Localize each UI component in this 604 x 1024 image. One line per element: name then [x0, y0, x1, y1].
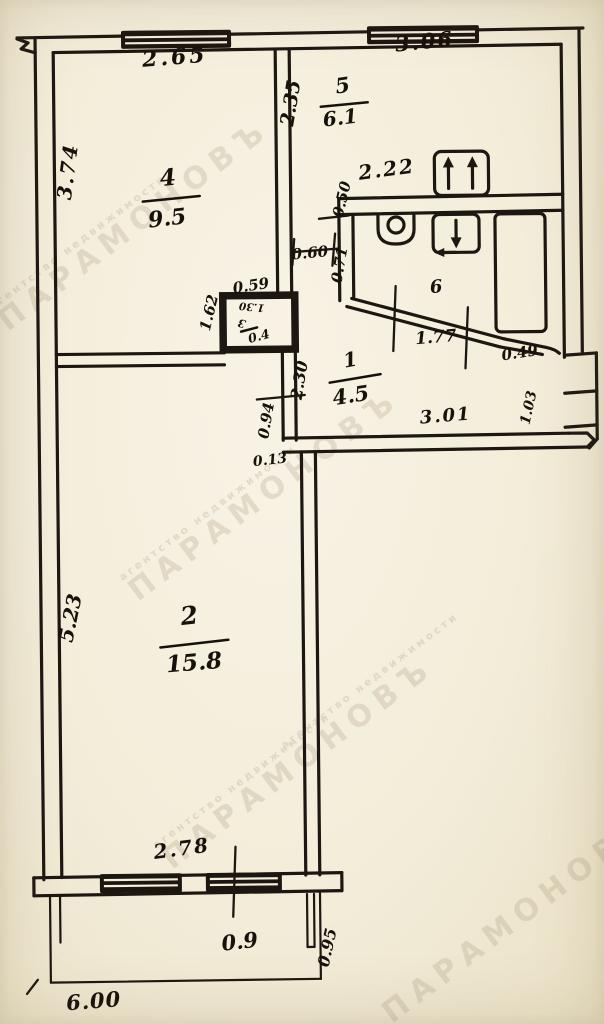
closet-inner-dim: 1.30	[238, 299, 265, 313]
vent-arrow-down-icon	[451, 237, 462, 248]
wall-segment	[301, 452, 305, 875]
balcony-area: 0.9	[220, 927, 260, 956]
wall-segment	[34, 873, 342, 878]
dim-entry-depth: 1.03	[518, 389, 541, 426]
scanned-floor-plan: агентство недвижимости ПАРАМОНОВЪ агентс…	[0, 0, 604, 1024]
room4-area: 9.5	[147, 203, 188, 233]
dim-window-room5: 3.06	[394, 26, 455, 57]
window-glass-line	[104, 879, 178, 880]
watermark: агентство недвижимости ПАРАМОНОВЪ	[0, 105, 277, 338]
wall-segment	[17, 28, 583, 38]
toilet-icon	[388, 217, 404, 233]
wall-segment	[275, 50, 278, 294]
wall-segment	[561, 44, 564, 357]
room2-area: 15.8	[165, 647, 223, 678]
dim-corridor-length: 2.30	[286, 359, 311, 402]
wall-break-symbol	[17, 39, 35, 53]
dim-balcony-depth: 0.95	[314, 926, 341, 968]
dim-tick	[27, 980, 38, 994]
wall-segment	[56, 353, 224, 355]
window-glass-line	[125, 42, 227, 43]
entry-recess	[565, 391, 597, 393]
wall-segment	[315, 452, 319, 875]
balcony-outline	[50, 891, 321, 983]
vent-shaft-up-icon	[434, 151, 488, 196]
vent-arrow-up-icon	[467, 156, 478, 167]
entry-recess	[565, 425, 597, 427]
dim-bath-wall: 0.71	[328, 245, 352, 284]
balcony-edge	[51, 979, 321, 983]
dim-bath-diagonal: 1.77	[414, 326, 457, 349]
window-glass-line	[125, 36, 227, 37]
balcony-partition	[314, 894, 315, 947]
diagonal-wall	[546, 347, 559, 353]
dim-passage-width: 0.60	[291, 242, 330, 264]
balcony-partition	[307, 894, 308, 947]
dim-hall-width: 3.01	[419, 403, 472, 428]
wall-segment	[579, 28, 582, 352]
dim-diagonal-tail: 0.49	[500, 341, 539, 364]
room5-number: 5	[333, 72, 351, 99]
room5-area: 6.1	[321, 104, 358, 132]
bathtub-icon	[495, 213, 546, 332]
wall-segment	[56, 365, 224, 367]
wall-segment	[569, 433, 594, 447]
wall-segment	[353, 214, 354, 296]
balcony-door-window-icon	[206, 872, 282, 892]
dim-room4-left: 3.74	[52, 142, 83, 201]
floor-plan-drawing: агентство недвижимости ПАРАМОНОВЪ агентс…	[0, 0, 604, 1024]
room1-number: 1	[341, 347, 359, 373]
room6-number: 6	[429, 276, 444, 298]
room3-number: 3	[236, 316, 247, 331]
wall-segment	[35, 40, 44, 880]
room4-number: 4	[159, 164, 178, 192]
room2-number: 2	[178, 600, 200, 631]
balcony-edge	[50, 896, 51, 983]
watermark-name: ПАРАМОНОВЪ	[0, 112, 277, 339]
wall-segment	[34, 891, 342, 896]
dim-total-width: 6.00	[65, 986, 122, 1015]
entry-recess	[564, 353, 596, 355]
window-room2-icon	[100, 873, 182, 893]
dim-window-room4: 2.65	[140, 42, 208, 73]
vent-arrow-up-icon	[443, 156, 454, 167]
dim-door-width: 0.94	[254, 401, 278, 440]
window-glass-line	[104, 885, 178, 886]
watermark: ПАРАМОНОВЪ	[376, 804, 604, 1024]
dim-room5-left: 2.35	[276, 78, 305, 128]
dim-kitchen-width: 2.22	[356, 154, 416, 185]
window-glass-line	[210, 878, 278, 879]
wall-segment	[282, 349, 283, 440]
watermark-name: ПАРАМОНОВЪ	[376, 804, 604, 1024]
dim-closet-height: 1.62	[196, 293, 222, 333]
window-glass-line	[210, 884, 278, 885]
